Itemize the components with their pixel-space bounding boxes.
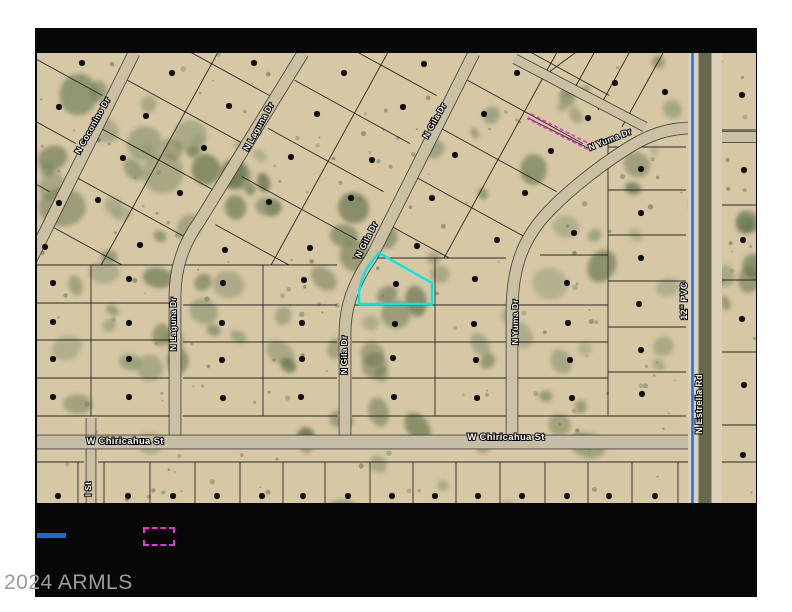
svg-text:N Gila Dr: N Gila Dr	[339, 335, 349, 374]
lot-boundary-legend-swatch	[143, 527, 175, 546]
svg-text:N Estrella Rd: N Estrella Rd	[694, 374, 704, 434]
pvc-waterline-legend-swatch	[37, 533, 66, 538]
listing-photo-page: N Coconino DrN Laguna DrN Laguna DrN Gil…	[0, 0, 792, 612]
armls-watermark: 2024 ARMLS	[4, 571, 133, 595]
satellite-parcel-map: N Coconino DrN Laguna DrN Laguna DrN Gil…	[37, 53, 756, 503]
svg-text:N Yuma Dr: N Yuma Dr	[510, 299, 520, 345]
svg-text:N Laguna Dr: N Laguna Dr	[168, 297, 178, 351]
svg-text:12" PVC: 12" PVC	[679, 282, 689, 320]
svg-text:l St: l St	[83, 482, 93, 496]
svg-text:W Chiricahua St: W Chiricahua St	[86, 436, 164, 447]
svg-text:W Chiricahua St: W Chiricahua St	[467, 432, 545, 443]
